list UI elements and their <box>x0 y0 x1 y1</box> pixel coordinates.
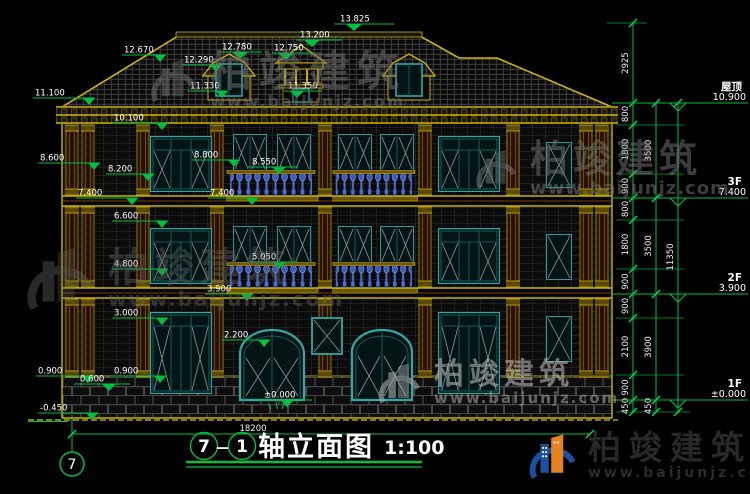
balcony-2f-right <box>330 262 417 293</box>
elevation-canvas: 13.825 13.200 12.750 12.780 12.290 11.33… <box>0 0 750 494</box>
svg-text:7: 7 <box>68 457 77 473</box>
drawing-title: 7 — 1 轴立面图 1:100 <box>186 431 444 467</box>
mark-band2: 4.800 <box>114 260 138 270</box>
svg-text:900: 900 <box>621 379 631 395</box>
ground-lines <box>28 420 618 422</box>
svg-text:—: — <box>216 440 230 456</box>
mark-door-top: 2.200 <box>224 331 248 341</box>
mark-col-capital: 8.600 <box>40 154 64 164</box>
svg-text:800: 800 <box>621 106 631 122</box>
balcony-3f-left <box>224 170 318 201</box>
level-1f-value: ±0.000 <box>711 389 746 400</box>
level-3f-value: 7.400 <box>719 187 746 198</box>
svg-text:11350: 11350 <box>666 243 676 270</box>
svg-text:900: 900 <box>621 273 631 289</box>
mark-eave-bottom: 10.100 <box>114 114 144 124</box>
svg-text:3500: 3500 <box>644 140 654 162</box>
cad-elevation-drawing: 13.825 13.200 12.750 12.780 12.290 11.33… <box>0 0 750 494</box>
roof-ridge <box>176 32 422 37</box>
mark-cupola-base: 11.350 <box>288 82 318 92</box>
mark-pedestal-center: 0.600 <box>80 375 104 385</box>
svg-text:3900: 3900 <box>644 336 654 358</box>
mark-win2-top: 6.600 <box>114 212 138 222</box>
building-elevation <box>56 32 618 418</box>
svg-text:800: 800 <box>621 201 631 217</box>
mark-cornice3: 8.800 <box>194 151 218 161</box>
mark-dormer-base: 11.330 <box>190 82 220 92</box>
title-text: 轴立面图 <box>258 431 374 463</box>
svg-text:3500: 3500 <box>644 235 654 257</box>
mark-dormer-top: 12.780 <box>222 43 252 53</box>
mark-pedestal-right: 0.900 <box>114 367 138 377</box>
entry-door-right <box>352 330 412 400</box>
svg-text:900: 900 <box>621 298 631 314</box>
svg-text:2925: 2925 <box>621 52 631 74</box>
mark-floor3-center: 7.400 <box>210 189 234 199</box>
mark-ridge: 13.825 <box>340 15 370 25</box>
axis-bubble-7: 7 <box>60 415 84 476</box>
mark-eave-top: 11.100 <box>35 89 65 99</box>
title-scale: 1:100 <box>384 437 444 459</box>
svg-text:1800: 1800 <box>621 139 631 161</box>
mark-dormer-eave: 12.290 <box>184 56 214 66</box>
mark-band3: 8.200 <box>108 165 132 175</box>
mark-pedestal-left: 0.900 <box>38 367 62 377</box>
mark-cupola-eave: 12.750 <box>274 44 304 54</box>
mark-ground: -0.450 <box>40 404 67 414</box>
mark-zero: ±0.000 <box>264 391 295 401</box>
svg-text:7: 7 <box>198 437 210 457</box>
brand-logo-block: 柏竣建筑 www.baijunjz.com <box>520 426 750 486</box>
level-roof-value: 10.900 <box>713 92 746 103</box>
svg-text:1: 1 <box>236 437 248 457</box>
mark-floor3-left: 7.400 <box>78 189 102 199</box>
right-dimension-chain: 2925 800 1800 900 800 1800 900 900 2100 … <box>607 19 690 416</box>
mark-sill2: 3.000 <box>114 309 138 319</box>
mark-rail3: 8.550 <box>252 158 276 168</box>
balcony-3f-right <box>330 170 417 201</box>
mark-rail2: 5.050 <box>252 253 276 263</box>
level-markers-right: 屋顶 10.900 3F 7.400 2F 3.900 1F ±0.000 <box>612 81 748 408</box>
brick-base <box>62 376 612 418</box>
svg-text:900: 900 <box>621 178 631 194</box>
mark-floor2: 3.900 <box>207 285 231 295</box>
level-2f-value: 3.900 <box>719 283 746 294</box>
baijun-logo-color-icon <box>520 426 580 486</box>
svg-text:2100: 2100 <box>621 336 631 358</box>
balcony-2f-left <box>224 262 318 293</box>
mark-roof-slope: 12.670 <box>124 46 154 56</box>
brand-url: www.baijunjz.com <box>588 466 750 481</box>
svg-text:1800: 1800 <box>621 234 631 256</box>
brand-name: 柏竣建筑 <box>588 431 750 466</box>
mark-cupola-top: 13.200 <box>300 31 330 41</box>
